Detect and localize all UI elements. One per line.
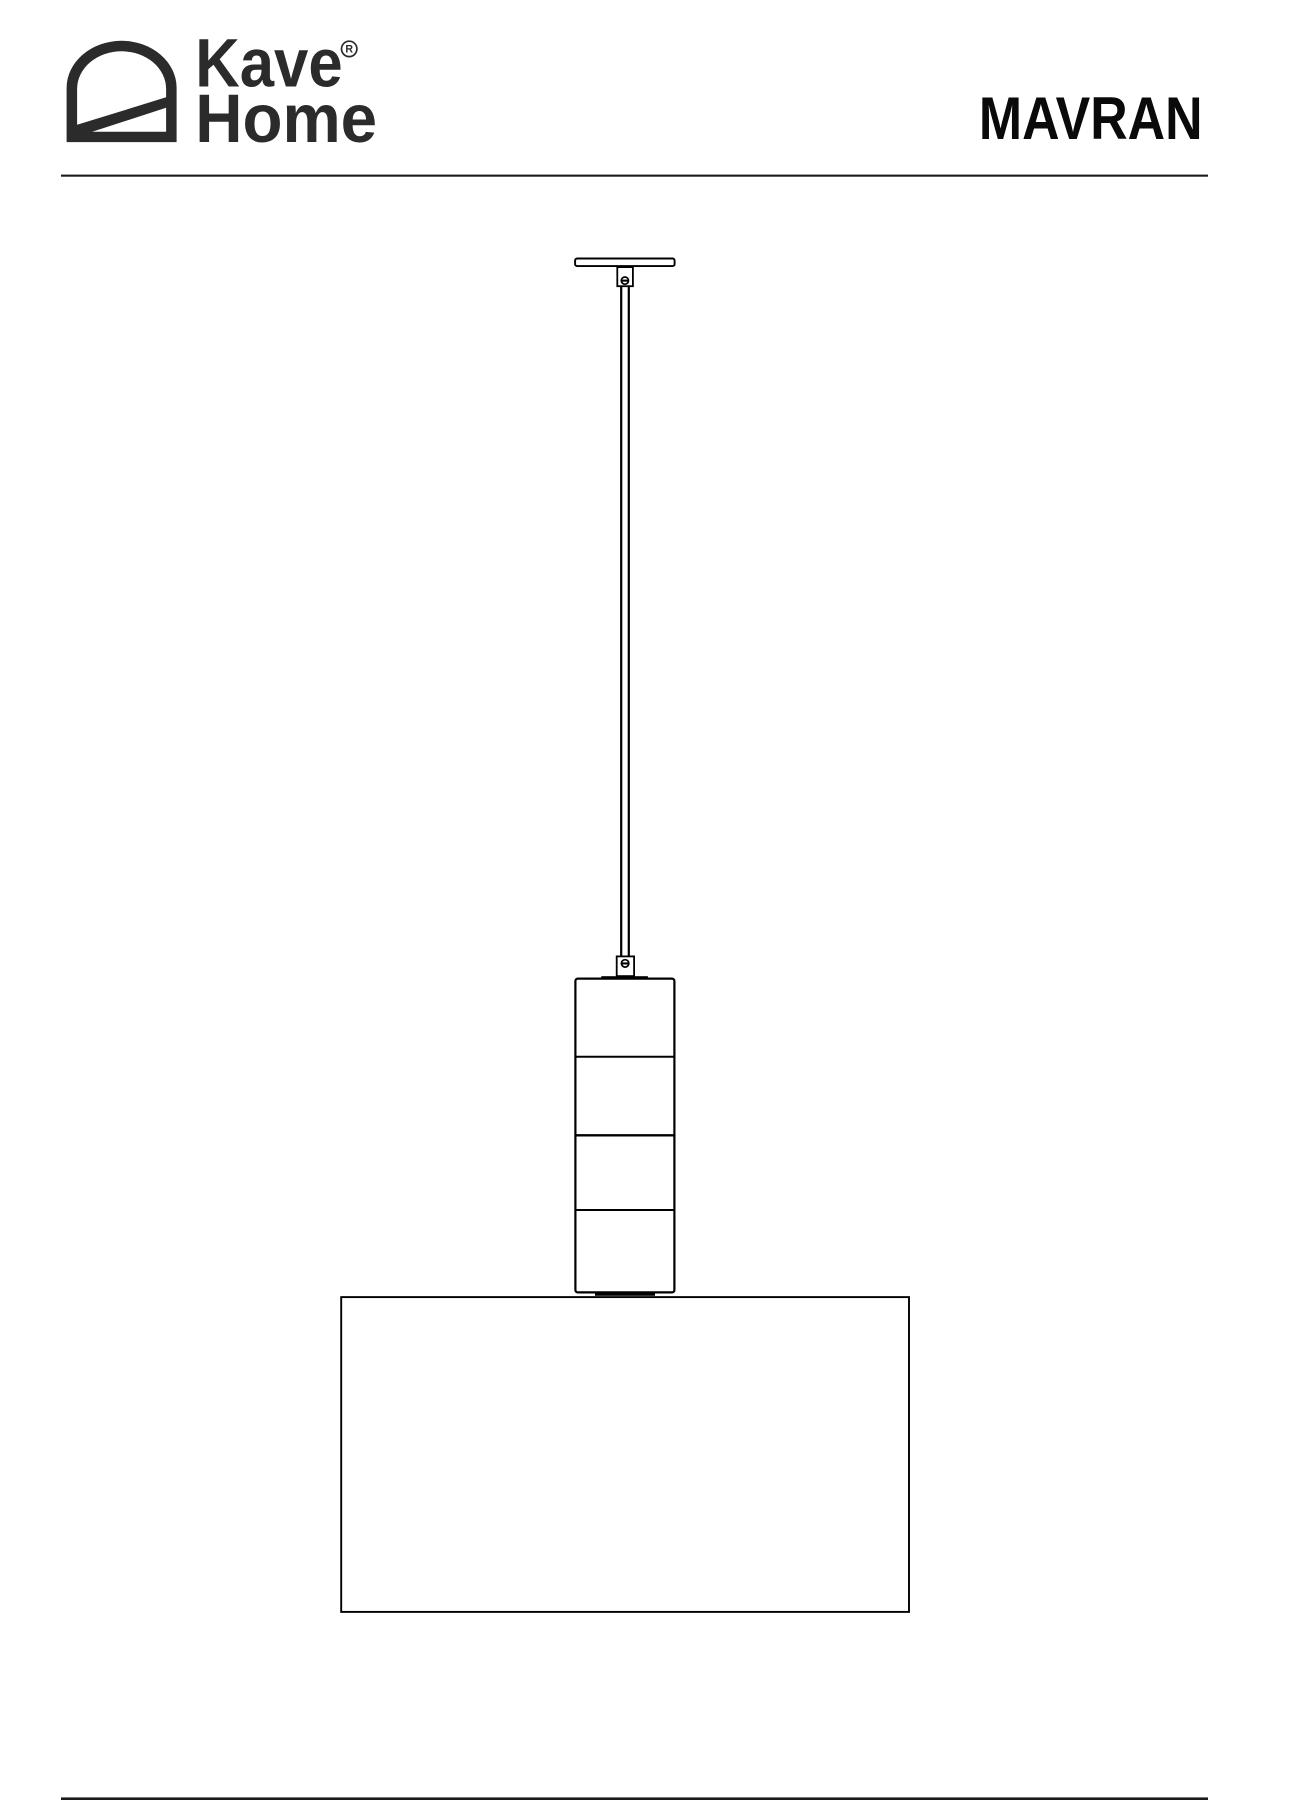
svg-text:R: R [345, 44, 353, 56]
svg-text:MAVRAN: MAVRAN [979, 84, 1203, 151]
svg-text:Home: Home [195, 80, 377, 157]
